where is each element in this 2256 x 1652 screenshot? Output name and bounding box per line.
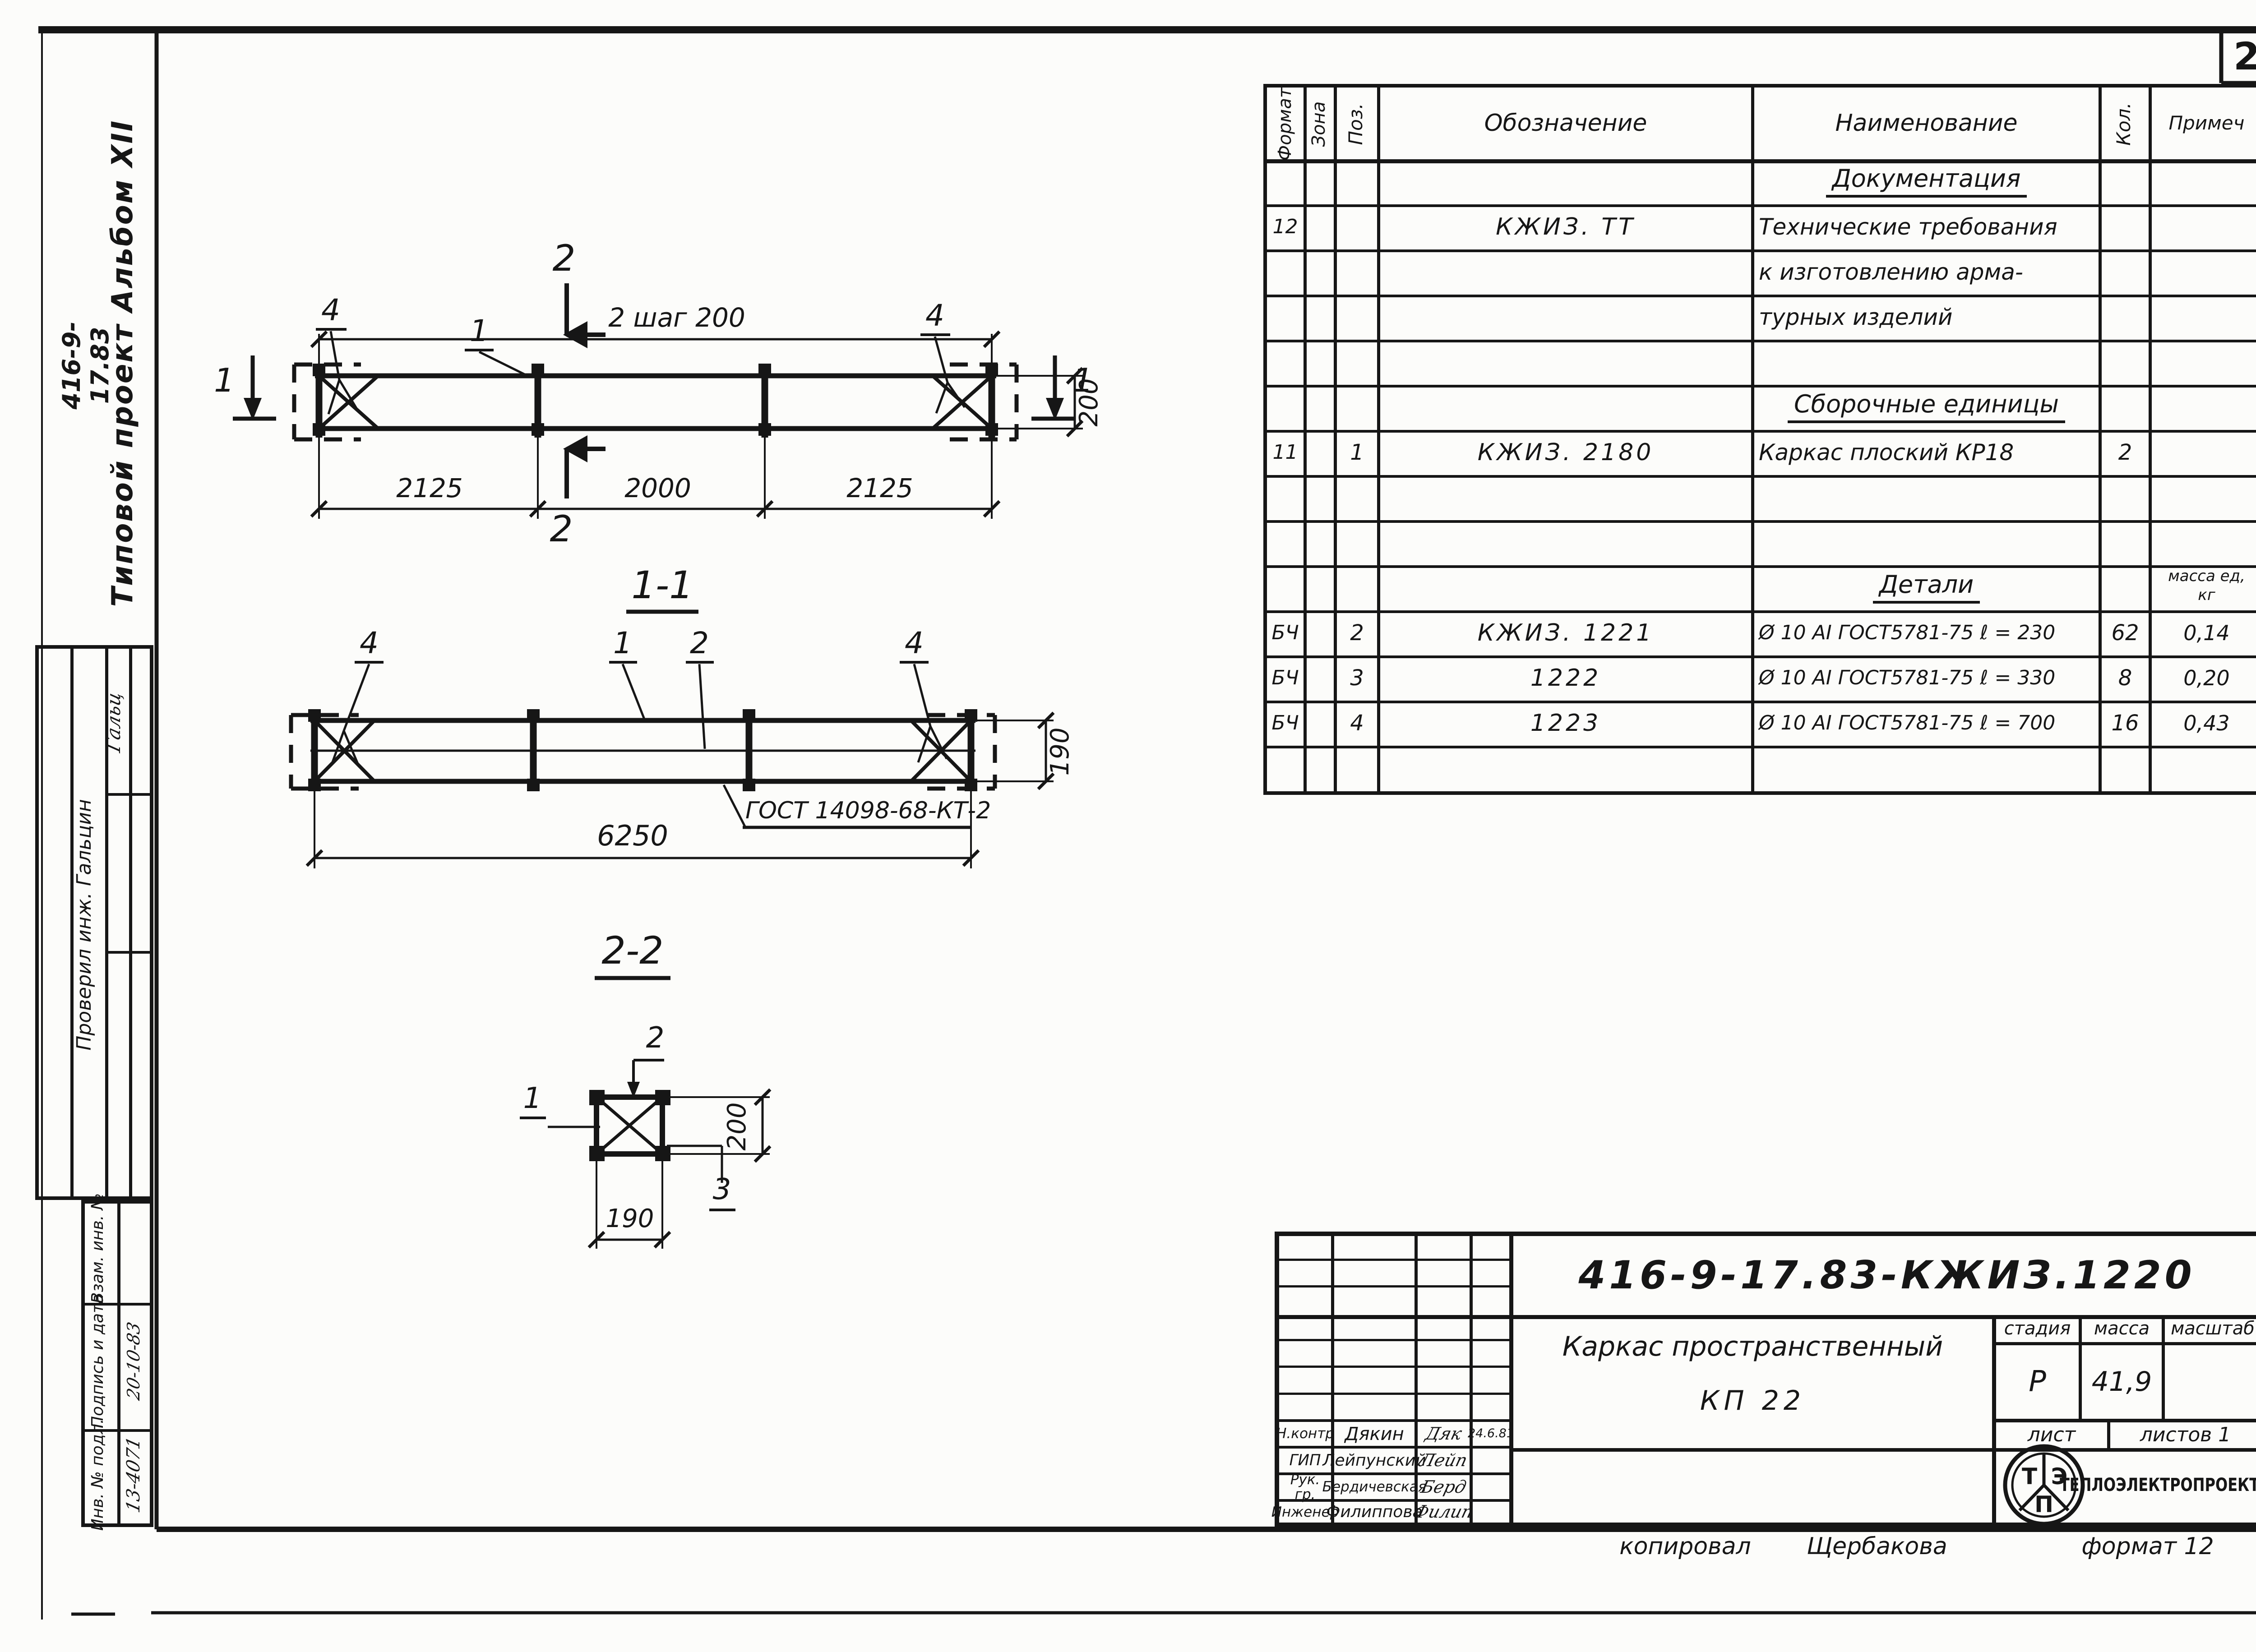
stage-value: Р (1996, 1345, 2079, 1419)
sig-role: Инженер (1279, 1502, 1331, 1523)
s11-weld-note: ГОСТ 14098-68-КТ-2 (724, 785, 991, 827)
section-2-2-view: 2-2 2 1 (520, 928, 770, 1249)
weld-gost-note: ГОСТ 14098-68-КТ-2 (745, 797, 991, 824)
spec-cell-format: БЧ (1267, 655, 1304, 701)
plan-view: 2 шаг 200 2125 2000 2125 (214, 237, 1104, 550)
sig-date: 24.6.81 (1473, 1422, 1509, 1446)
spec-cell-pos: 3 (1337, 655, 1377, 701)
s11-callouts: 4 1 2 4 (332, 626, 947, 767)
margin-checked-signature: Гальц (102, 651, 125, 792)
s22-callout-3: 3 (667, 1146, 735, 1210)
sheets-label: листов 1 (2110, 1422, 2256, 1448)
drawing-title-line2: КП 22 (1513, 1380, 1992, 1421)
sig-date (1473, 1449, 1509, 1472)
spec-cell-designation: 1222 (1380, 655, 1751, 701)
spec-section-documentation-label: Документация (1826, 166, 2027, 198)
s22-dim-height: 200 (722, 1103, 752, 1151)
section-1-1-view: 1-1 (291, 563, 1075, 868)
spec-cell-note: 0,20 (2152, 655, 2256, 701)
sig-date (1473, 1475, 1509, 1499)
s22-callout-1: 1 (520, 1082, 600, 1127)
margin-checked-by: Проверил инж. Гальцин (73, 665, 95, 1184)
sig-signature: Филип (1415, 1502, 1472, 1523)
spec-cell-qty: 2 (2102, 430, 2149, 475)
scale-label: масштаб (2165, 1315, 2256, 1342)
spec-mass-unit-label-2: кг (2152, 586, 2256, 605)
spec-header-designation: Обозначение (1380, 88, 1751, 159)
spec-cell-pos: 1 (1337, 430, 1377, 475)
spec-cell-qty: 8 (2102, 655, 2149, 701)
sig-name: Филиппова (1334, 1502, 1415, 1523)
stamp-label-inv-podl: Инв. № подл. (88, 1380, 107, 1569)
drawing-title-line1: Каркас пространственный (1513, 1326, 1992, 1367)
s11-dim-length: 6250 (597, 819, 668, 852)
spec-cell-designation: КЖИЗ. ТТ (1380, 204, 1751, 249)
plan-bottom-dimension: 2125 2000 2125 (311, 435, 999, 519)
spec-section-details: Детали (1754, 565, 2099, 610)
section-2-2-title: 2-2 (601, 928, 663, 973)
plan-x-bracing (319, 376, 992, 429)
spec-cell-format: БЧ (1267, 610, 1304, 655)
margin-album-title: Типовой проект Альбом XII (108, 102, 138, 625)
spec-cell-designation: 1223 (1380, 701, 1751, 746)
page-number: 25 (2221, 30, 2256, 83)
spec-header-zone: Зона (1307, 88, 1331, 160)
sheet-label: лист (1996, 1422, 2107, 1448)
mass-value: 41,9 (2082, 1345, 2162, 1419)
plan-dim-a: 2125 (396, 473, 463, 503)
spec-header-pos: Поз. (1344, 88, 1367, 160)
stamp-value-inv-podl: 13-4071 (124, 1378, 143, 1572)
section-marker-2-bottom: 2 (550, 435, 606, 550)
spec-cell-note: 0,14 (2152, 610, 2256, 655)
callout-1: 1 (470, 314, 489, 348)
spec-cell-qty: 16 (2102, 701, 2149, 746)
spec-header-name: Наименование (1754, 88, 2099, 159)
spec-cell-name: Ø 10 АI ГОСТ5781-75 ℓ = 700 (1759, 701, 2099, 746)
copied-by: Щербакова (1782, 1533, 1972, 1560)
plan-dim-c: 2125 (846, 473, 913, 503)
section-marker-2-top: 2 (553, 237, 606, 348)
marker-1-right-label: 1 (1073, 361, 1093, 399)
scale-value (2165, 1345, 2256, 1419)
plan-dim-step: 2 шаг 200 (608, 302, 745, 333)
spec-cell-format: 12 (1267, 204, 1304, 249)
spec-mass-unit-label: масса ед, (2152, 565, 2256, 588)
spec-cell-designation: КЖИЗ. 1221 (1380, 610, 1751, 655)
sig-date (1473, 1502, 1509, 1523)
section-1-1-title: 1-1 (631, 563, 693, 607)
spec-section-assembly: Сборочные единицы (1754, 385, 2099, 430)
spec-cell-name: турных изделий (1759, 295, 2099, 340)
spec-cell-format: 11 (1267, 430, 1304, 475)
sig-signature: Лейп (1415, 1449, 1472, 1472)
s22-width-dimension: 190 (589, 1157, 670, 1249)
format-note: формат 12 (2062, 1533, 2233, 1560)
spec-cell-name: Ø 10 АI ГОСТ5781-75 ℓ = 230 (1759, 610, 2099, 655)
logo-organization-name: ТЕПЛОЭЛЕКТРОПРОЕКТ (2089, 1472, 2230, 1499)
sig-name: Бердичевская (1334, 1475, 1415, 1499)
callout-4-left: 4 (321, 293, 340, 328)
marker-2-bottom-label: 2 (550, 508, 573, 550)
plan-dim-b: 2000 (624, 473, 691, 503)
mass-label: масса (2082, 1315, 2162, 1342)
spec-table: Формат Зона Поз. Обозначение Наименовани… (1263, 84, 2256, 795)
spec-header-note: Примеч (2152, 88, 2256, 159)
spec-section-assembly-label: Сборочные единицы (1788, 392, 2065, 424)
s11-callout-4-left: 4 (360, 626, 379, 660)
spec-header-qty: Кол. (2112, 88, 2135, 160)
sig-name: Лейпунский (1334, 1449, 1415, 1472)
spec-cell-name: Ø 10 АI ГОСТ5781-75 ℓ = 330 (1759, 655, 2099, 701)
spec-cell-note: 0,43 (2152, 701, 2256, 746)
s22-callout-1-label: 1 (523, 1082, 542, 1115)
s11-callout-4-right: 4 (905, 626, 924, 660)
spec-cell-name: Каркас плоский КР18 (1759, 430, 2099, 475)
section-marker-1-left: 1 (214, 355, 276, 420)
sig-signature: Дяк (1415, 1422, 1472, 1446)
sig-role: Н.контр (1279, 1422, 1331, 1446)
spec-section-documentation: Документация (1754, 159, 2099, 204)
s22-callout-2: 2 (627, 1021, 664, 1098)
copied-label: копировал (1611, 1533, 1760, 1560)
s22-height-dimension: 200 (662, 1089, 770, 1162)
callout-4-right: 4 (925, 298, 944, 333)
drawing-sheet: 2 шаг 200 2125 2000 2125 (0, 0, 2256, 1652)
plan-top-dimension: 2 шаг 200 (311, 302, 999, 376)
stage-label: стадия (1996, 1315, 2079, 1342)
margin-doc-code: 416-9-17.83 (73, 291, 98, 440)
marker-2-top-label: 2 (553, 237, 576, 279)
spec-cell-name: к изготовлению арма- (1759, 249, 2099, 295)
spec-header-format: Формат (1273, 88, 1297, 160)
spec-cell-designation: КЖИЗ. 2180 (1380, 430, 1751, 475)
s11-callout-1: 1 (613, 626, 632, 660)
spec-cell-name: Технические требования (1759, 204, 2099, 249)
spec-cell-format: БЧ (1267, 701, 1304, 746)
s22-dim-width: 190 (606, 1204, 654, 1233)
sig-signature: Берд (1415, 1475, 1472, 1499)
s11-height-dimension: 190 (975, 713, 1075, 789)
spec-cell-pos: 2 (1337, 610, 1377, 655)
spec-cell-pos: 4 (1337, 701, 1377, 746)
doc-number: 416-9-17.83-КЖИЗ.1220 (1513, 1236, 2256, 1315)
marker-1-left-label: 1 (214, 361, 235, 399)
sig-name: Дякин (1334, 1422, 1415, 1446)
s22-callout-2-label: 2 (646, 1021, 665, 1055)
spec-section-details-label: Детали (1873, 572, 1980, 604)
s11-callout-2: 2 (690, 626, 709, 660)
s11-dim-height: 190 (1045, 728, 1075, 776)
spec-cell-qty: 62 (2102, 610, 2149, 655)
